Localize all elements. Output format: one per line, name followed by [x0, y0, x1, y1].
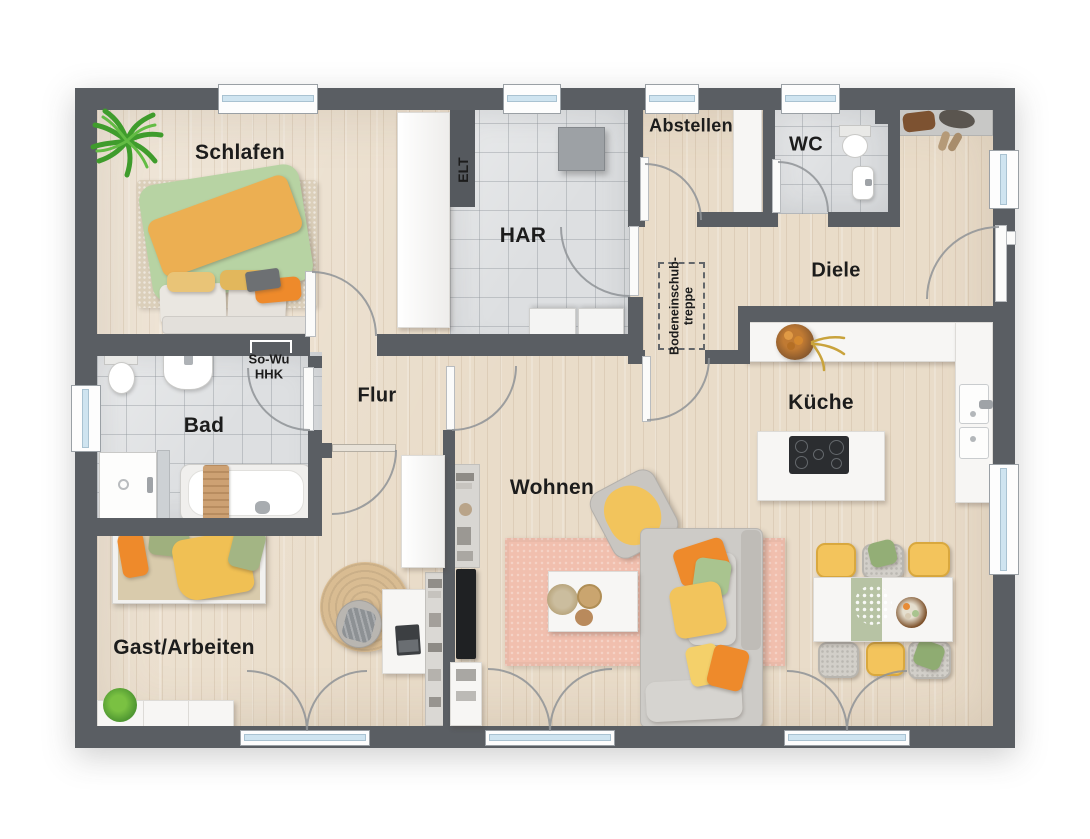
attic-hatch: Bodeneinschub- treppe: [658, 262, 705, 350]
label-har: HAR: [500, 224, 546, 248]
label-wc: WC: [789, 134, 823, 157]
label-wohnen: Wohnen: [510, 476, 594, 500]
floor-plan: Bodeneinschub- treppe Schlafen HAR Abste…: [0, 0, 1090, 839]
label-elt: ELT: [455, 157, 471, 182]
label-so-wu-hhk: So-Wu HHK: [249, 352, 290, 381]
label-schlafen: Schlafen: [195, 141, 285, 165]
label-abstellen: Abstellen: [649, 116, 733, 137]
label-flur: Flur: [358, 385, 397, 408]
door-swing-arcs: [0, 0, 1090, 839]
kitchen-sprig: [812, 337, 844, 370]
palm-plant: [93, 111, 161, 175]
label-gast-arbeiten: Gast/Arbeiten: [113, 636, 255, 660]
label-diele: Diele: [811, 260, 860, 283]
label-bad: Bad: [184, 414, 225, 438]
label-kueche: Küche: [788, 391, 854, 415]
attic-hatch-label: Bodeneinschub- treppe: [667, 257, 696, 355]
